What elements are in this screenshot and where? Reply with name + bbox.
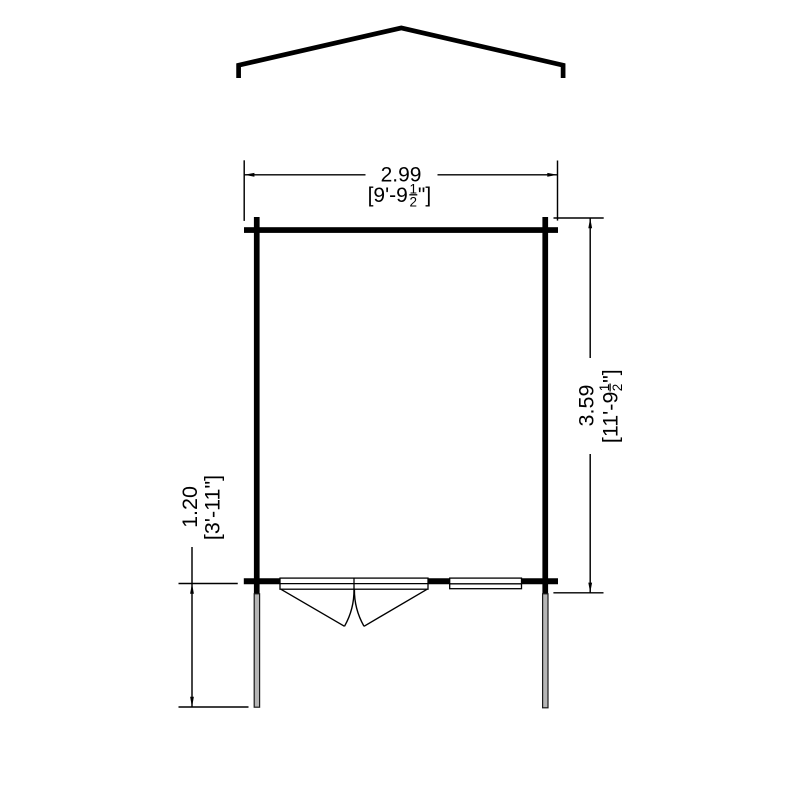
svg-text:3.59: 3.59 xyxy=(575,385,599,427)
svg-text:1.20: 1.20 xyxy=(178,486,202,528)
svg-text:[11'-9: [11'-9 xyxy=(599,392,623,444)
svg-text:[9'-9: [9'-9 xyxy=(368,184,408,207)
svg-text:2: 2 xyxy=(610,384,625,392)
svg-text:"]: "] xyxy=(599,369,623,383)
svg-text:2: 2 xyxy=(410,195,418,210)
svg-text:[3'-11"]: [3'-11"] xyxy=(201,475,225,540)
svg-text:"]: "] xyxy=(418,184,431,207)
